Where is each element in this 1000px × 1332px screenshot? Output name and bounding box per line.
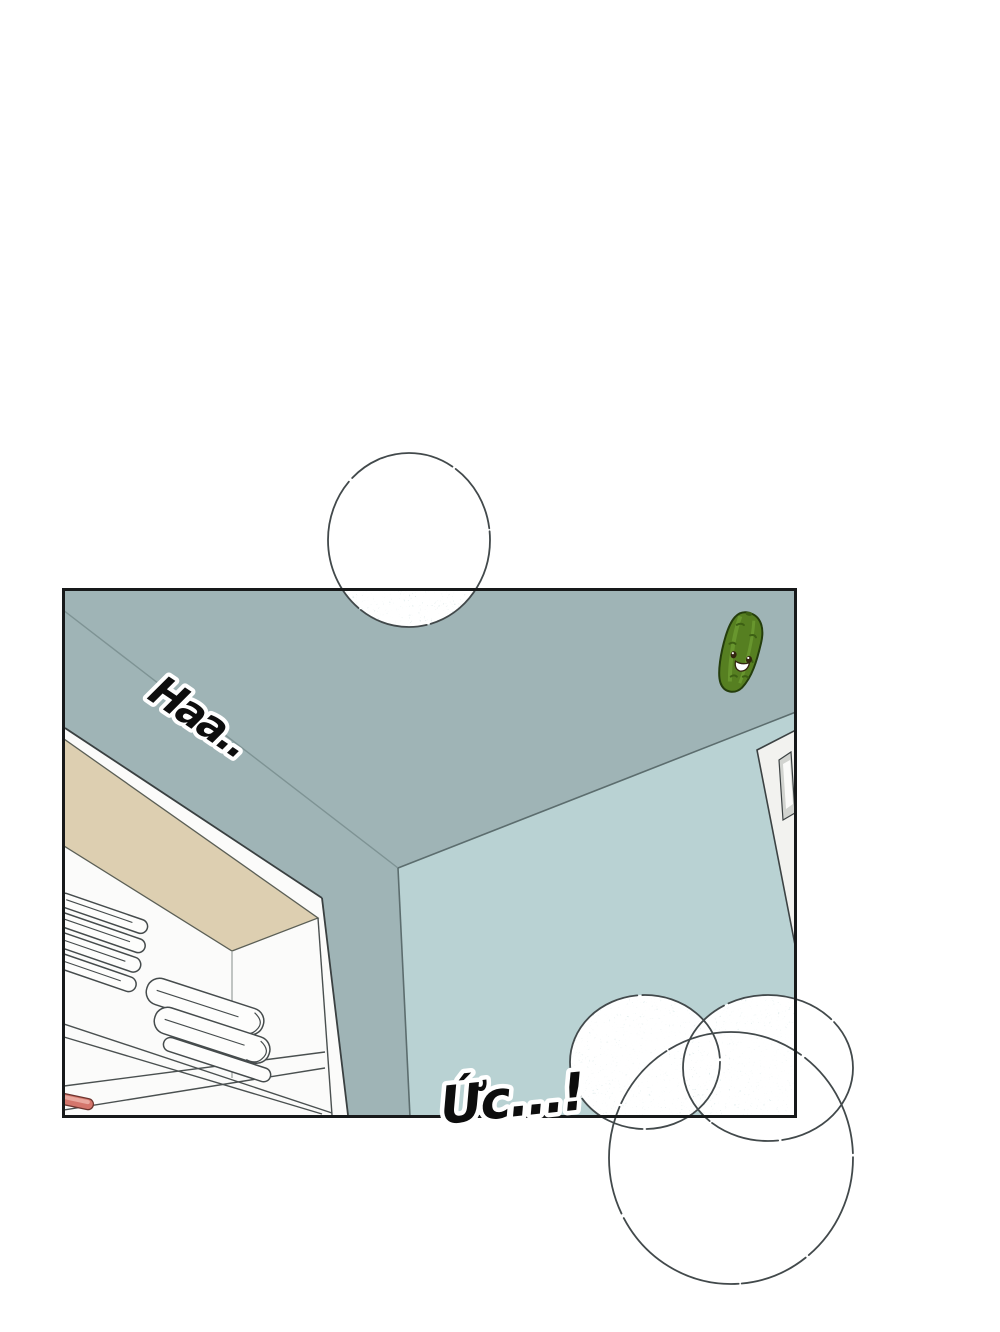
comic-page: Haa.. Ức...! <box>0 0 1000 1332</box>
comic-panel-scene: Haa.. Ức...! <box>0 0 1000 1332</box>
panel-interior <box>37 453 853 1141</box>
